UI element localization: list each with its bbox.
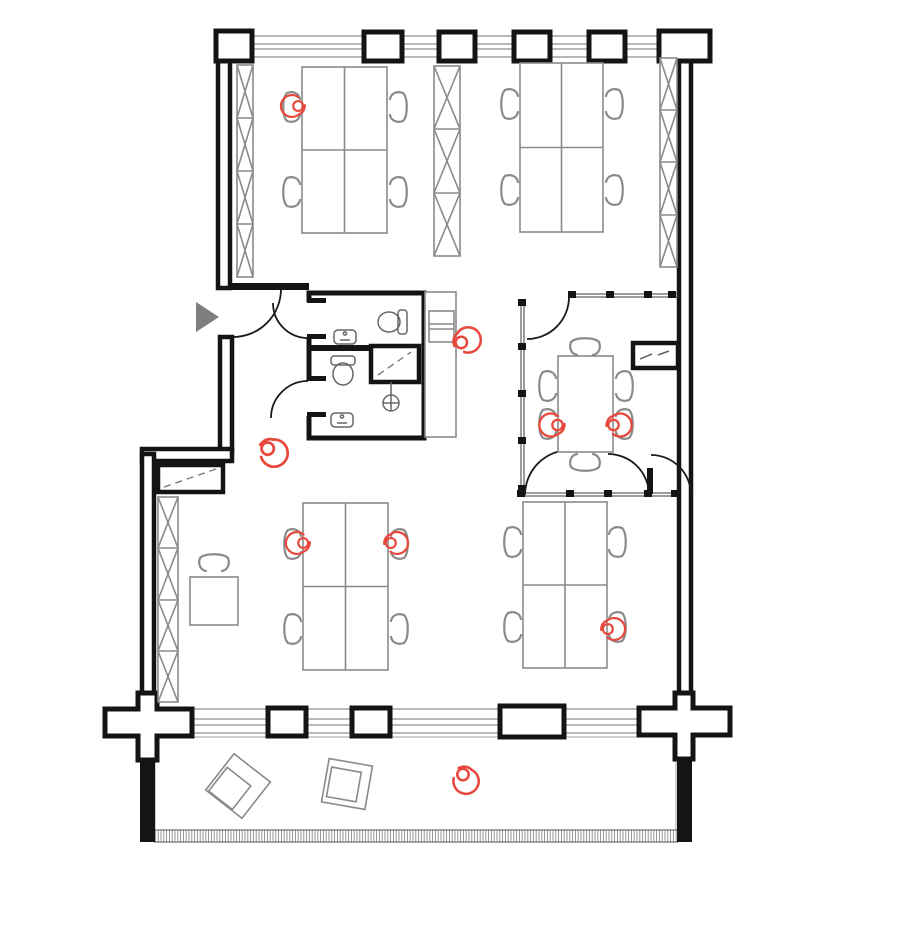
chair-icon bbox=[504, 527, 521, 557]
shelf-unit-south-west bbox=[158, 497, 178, 702]
sanitary-block bbox=[304, 293, 424, 438]
chair-icon bbox=[606, 175, 623, 205]
chair-icon bbox=[284, 614, 301, 644]
chair-icon bbox=[616, 371, 633, 401]
shelf-unit-north-west bbox=[237, 65, 253, 277]
terrace-deck bbox=[154, 737, 678, 842]
meeting-door-swing bbox=[608, 454, 649, 495]
wc-door-swing bbox=[271, 381, 308, 418]
column bbox=[439, 32, 475, 61]
column bbox=[352, 708, 390, 736]
corridor-wall bbox=[229, 283, 309, 290]
door-opening bbox=[304, 302, 314, 338]
meeting-door-swing bbox=[527, 297, 569, 339]
glass-partition-meeting-west bbox=[518, 299, 526, 492]
floor-plan-canvas bbox=[0, 0, 900, 935]
entry-arrow-icon bbox=[196, 302, 219, 332]
wc-divider-wall bbox=[309, 345, 371, 351]
person-icon bbox=[448, 762, 483, 798]
chair-icon bbox=[504, 612, 521, 642]
desk-cluster-north-east bbox=[501, 63, 623, 232]
cross-column bbox=[639, 693, 730, 759]
terrace-table bbox=[206, 754, 271, 819]
terrace-railing bbox=[154, 830, 678, 842]
shelf-unit-north-east bbox=[660, 58, 677, 267]
shower-closet bbox=[371, 346, 419, 382]
meeting-door-swing bbox=[525, 450, 570, 495]
glass-partition-meeting-south bbox=[517, 468, 679, 497]
terrace-side-wall-east bbox=[677, 757, 692, 842]
west-wall-mid bbox=[220, 337, 232, 451]
door-opening bbox=[304, 380, 314, 416]
column bbox=[500, 706, 564, 737]
chair-icon bbox=[539, 371, 556, 401]
column bbox=[216, 31, 252, 61]
chair-icon bbox=[283, 177, 300, 207]
cross-column bbox=[105, 693, 192, 760]
chair-icon bbox=[501, 175, 518, 205]
terrace-side-wall-west bbox=[140, 758, 155, 842]
chair-icon bbox=[606, 89, 623, 119]
desk-cluster-north-west bbox=[283, 67, 407, 233]
column bbox=[268, 708, 306, 736]
meeting-table bbox=[539, 338, 633, 471]
terrace-table bbox=[322, 759, 373, 810]
column bbox=[659, 31, 710, 61]
chair-icon bbox=[390, 177, 407, 207]
column bbox=[364, 32, 402, 61]
desk-cluster-south-west bbox=[284, 503, 408, 670]
shelf-unit-north-center bbox=[434, 66, 460, 256]
door-swings bbox=[233, 289, 691, 495]
chair-icon bbox=[570, 454, 600, 471]
window-band-south bbox=[156, 709, 672, 733]
west-wall-upper bbox=[218, 55, 230, 288]
single-desk bbox=[190, 554, 238, 625]
east-wall bbox=[679, 55, 691, 706]
chair-icon bbox=[501, 89, 518, 119]
niche-cabinet-west bbox=[158, 465, 223, 492]
chair-icon bbox=[609, 527, 626, 557]
chair-icon bbox=[199, 554, 229, 571]
desk-cluster-south-east bbox=[504, 502, 626, 668]
chair-icon bbox=[391, 614, 408, 644]
wc-door-swing bbox=[273, 303, 308, 338]
west-wall-lower bbox=[142, 454, 154, 709]
glass-partition-meeting-north bbox=[568, 291, 679, 298]
column bbox=[589, 32, 625, 61]
person-icon bbox=[253, 433, 293, 472]
chair-icon bbox=[390, 92, 407, 122]
appliance-icon bbox=[429, 311, 454, 342]
kitchen-counter bbox=[425, 292, 456, 437]
floor-plan-page bbox=[0, 0, 900, 935]
niche-cabinet-meeting bbox=[633, 343, 678, 368]
chair-icon bbox=[570, 338, 600, 355]
column bbox=[514, 32, 550, 61]
